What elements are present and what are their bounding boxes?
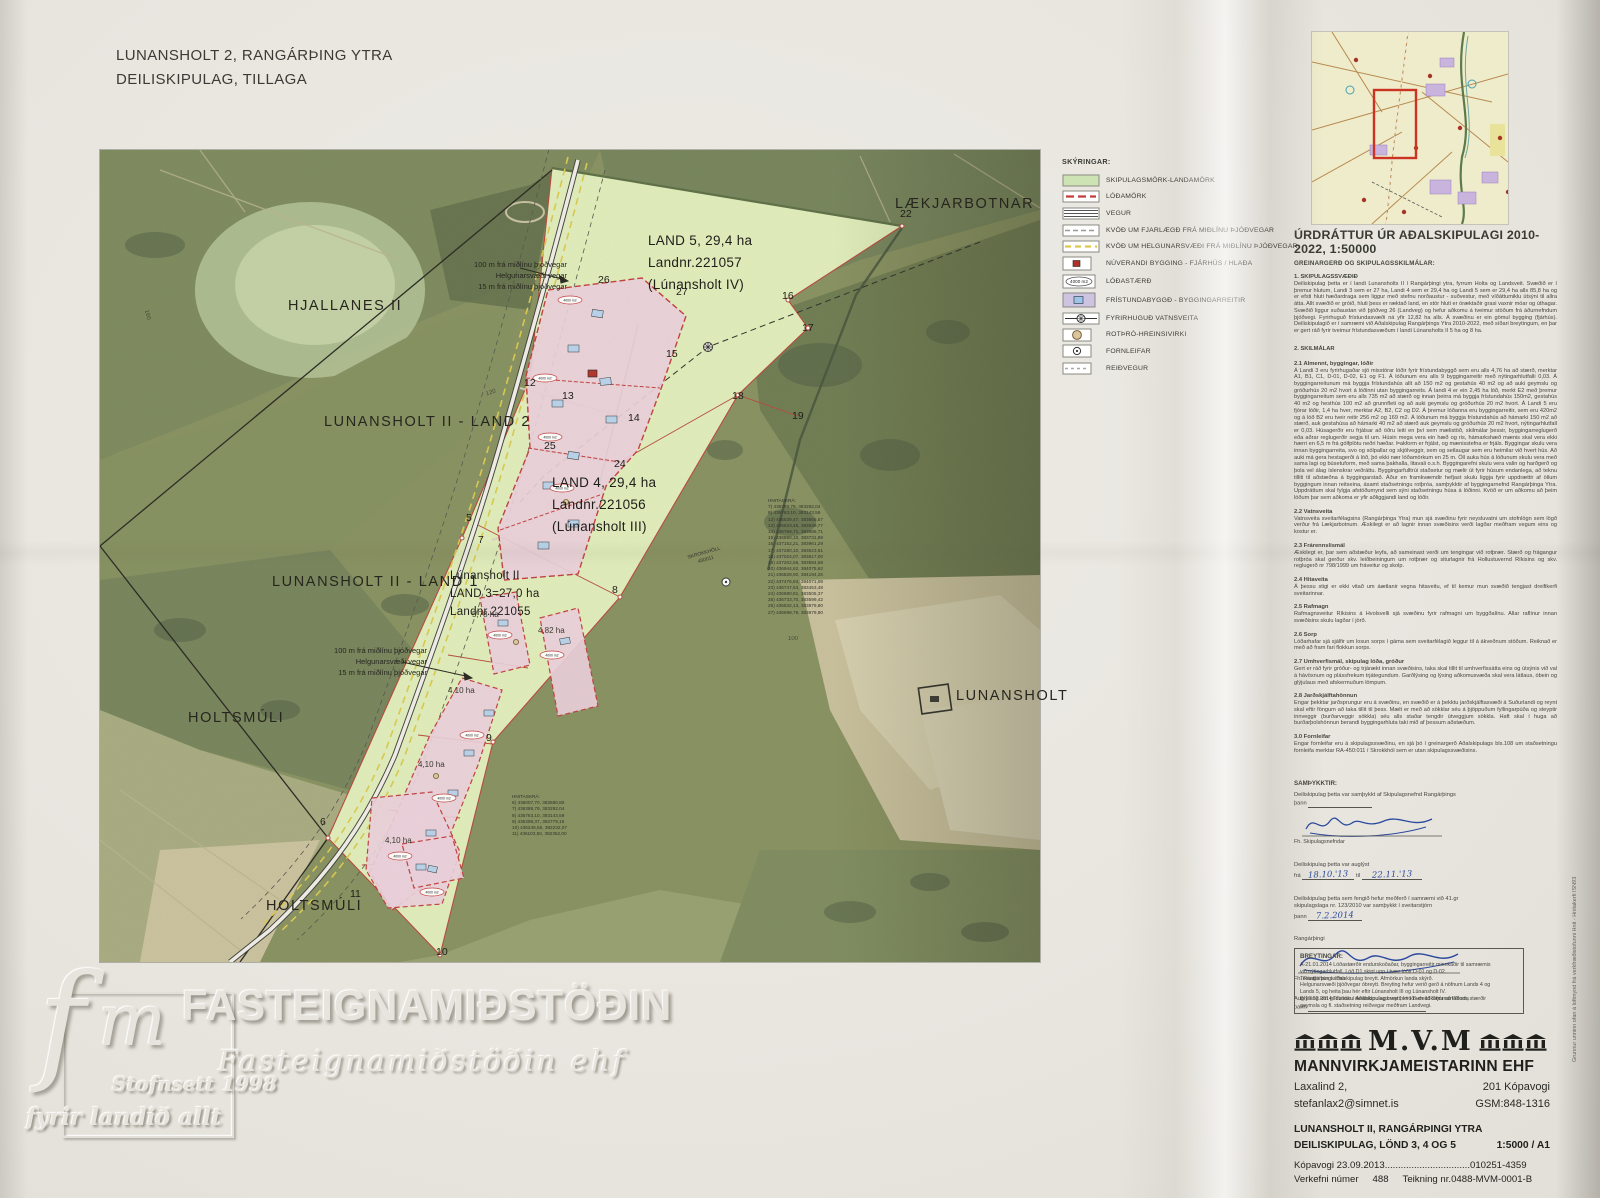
point-number: 18 <box>732 390 744 402</box>
reference-number: 010251-4359 <box>1470 1160 1527 1171</box>
section-body: Á þessu stigi er ekki vitað um áætlanir … <box>1294 584 1557 597</box>
legend-item: VEGUR <box>1062 205 1298 222</box>
council-line-a: Deiliskipulag þetta sem fengið hefur með… <box>1294 896 1458 902</box>
point-number: 12 <box>524 377 536 389</box>
point-number: 22 <box>900 208 912 220</box>
project-number: 488 <box>1373 1174 1389 1185</box>
road-note-mid: 100 m frá miðlínu þjóðvegar Helgunarsvæð… <box>312 646 427 679</box>
company-address: Laxalind 2, <box>1294 1079 1399 1096</box>
company-name: MANNVIRKJAMEISTARINN EHF <box>1294 1058 1550 1076</box>
plan-boundary-icon <box>1062 174 1106 187</box>
amendments-box: BREYTINGAR: A-21.01.2014 Lóðastærðir end… <box>1294 948 1524 1014</box>
left-edge-shadow <box>0 0 28 1198</box>
road-note-top: 100 m frá miðlínu þjóðvegar Helgunarsvæð… <box>452 260 567 293</box>
section-heading: 2.7 Umhverfismál, skipulag lóða, gróður <box>1294 659 1557 665</box>
watermark-logo-m: m <box>98 978 166 1062</box>
project-number-label: Verkefni númer <box>1294 1174 1359 1185</box>
place-label-holtsmuli-1: HOLTSMÚLI <box>188 710 284 726</box>
section-body: Engar fornleifar eru á skipulagssvæðinu,… <box>1294 741 1557 754</box>
section-heading: 1. SKIPULAGSSVÆÐIÐ <box>1294 274 1557 280</box>
point-number: 6 <box>320 816 326 828</box>
point-number: 17 <box>802 322 814 334</box>
project-number-line: Verkefni númer 488 Teikning nr.0488-MVM-… <box>1294 1174 1550 1185</box>
legend-item: NÚVERANDI BYGGING - FJÁRHÚS / HLAÐA <box>1062 255 1298 273</box>
advert-date-from: 18.10.'13 <box>1308 869 1349 882</box>
point-number: 24 <box>614 458 626 470</box>
svg-text:4000 m2: 4000 m2 <box>1070 280 1088 285</box>
watermark-company-script: Fasteignamiðstöðin ehf <box>218 1044 626 1078</box>
section-body: Æskilegt er, þar sem aðstæður leyfa, að … <box>1294 550 1557 570</box>
report-column: ÚRDRÁTTUR ÚR AÐALSKIPULAGI 2010-2022, 1:… <box>1294 228 1557 754</box>
legend-item: LÓÐAMÖRK <box>1062 189 1298 206</box>
point-number: 11 <box>350 888 361 900</box>
lot-size-icon: 4000 m2 <box>1062 274 1106 289</box>
riding-path-icon <box>1062 362 1106 375</box>
approvals-heading: SAMÞYKKTIR: <box>1294 780 1557 788</box>
inset-map-adalskipulag <box>1312 32 1508 224</box>
photo-grain <box>100 150 1040 962</box>
document-title-line2: DEILISKIPULAG, TILLAGA <box>116 68 393 92</box>
section-body: Vatnsveita sveitarfélagsins (Rangárþinga… <box>1294 516 1557 536</box>
leader-dots: ................................ <box>1385 1160 1470 1171</box>
section-body: Deiliskipulag þetta er í landi Lunanshol… <box>1294 281 1557 335</box>
approval-line1: Deiliskipulag þetta var samþykkt af Skip… <box>1294 792 1456 798</box>
company-email: stefanlax2@simnet.is <box>1294 1096 1399 1113</box>
hnitaskra-main: HNITASKRÁ: 7) 436389,79, 383292,04 8) 43… <box>768 498 823 616</box>
road-icon <box>1062 207 1106 220</box>
section-heading: 2.2 Vatnsveita <box>1294 509 1557 515</box>
signature-1 <box>1300 809 1450 841</box>
section-heading: 2.3 Frárennslismál <box>1294 543 1557 549</box>
lot-boundary-icon <box>1062 190 1106 203</box>
date-blank <box>1308 800 1372 808</box>
land4-label: LAND 4, 29,4 ha Landnr.221056 (Lúnanshol… <box>552 472 656 538</box>
section-heading: 2.6 Sorp <box>1294 632 1557 638</box>
amendments-body: A-21.01.2014 Lóðastærðir endurskoðaðar, … <box>1300 962 1518 1009</box>
section-body: Rafmagnsveitur Ríkisins á Hvolsvelli sjá… <box>1294 611 1557 624</box>
date-place: Kópavogi 23.09.2013 <box>1294 1160 1385 1171</box>
point-number: 13 <box>562 390 574 402</box>
scanned-plan-sheet: LUNANSHOLT 2, RANGÁRÞING YTRA DEILISKIPU… <box>0 0 1600 1198</box>
point-number: 10 <box>436 946 448 958</box>
section-heading: 2.1 Almennt, byggingar, lóðir <box>1294 361 1557 367</box>
section-body: Lóðarhafar sjá sjálfir um losun sorps í … <box>1294 639 1557 652</box>
area-label: 4,10 ha <box>418 760 445 769</box>
company-phone: GSM:848-1316 <box>1475 1096 1550 1113</box>
legend-item: ROTÞRÓ-HREINSIVIRKI <box>1062 327 1298 344</box>
point-number: 26 <box>598 274 610 286</box>
place-label-lunansholt: LUNANSHOLT <box>956 688 1068 704</box>
hnitaskra-south: HNITASKRÁ: 6) 436007,70, 382580,80 7) 43… <box>512 794 567 837</box>
amendments-heading: BREYTINGAR: <box>1300 953 1518 960</box>
project-title-line2: DEILISKIPULAG, LÖND 3, 4 OG 5 <box>1294 1138 1456 1153</box>
date-line: Kópavogi 23.09.2013.....................… <box>1294 1160 1550 1171</box>
legend-item: 4000 m2 LÓÐASTÆRÐ <box>1062 273 1298 291</box>
point-number: 9 <box>486 732 492 744</box>
watermark-company-name: FASTEIGNAMIÐSTÖÐIN <box>182 982 672 1031</box>
point-number: 16 <box>782 290 794 302</box>
legend-item: FYRIRHUGUÐ VATNSVEITA <box>1062 310 1298 327</box>
point-number: 25 <box>544 440 556 452</box>
drawing-number: Teikning nr.0488-MVM-0001-B <box>1403 1174 1533 1185</box>
legend-item: FRÍSTUNDABYGGÐ - BYGGINGARREITIR <box>1062 291 1298 310</box>
place-label-holtsmuli-2: HOLTSMÚLI <box>266 898 362 914</box>
advert-line: Deiliskipulag þetta var auglýst <box>1294 862 1369 868</box>
municipality-label: Rangárþingi <box>1294 936 1325 942</box>
council-line-b: skipulagslaga nr. 123/2010 var samþykkt … <box>1294 903 1432 909</box>
legend-item: KVÖÐ UM HELGUNARSVÆÐI FRÁ MIÐLÍNU ÞJÓÐVE… <box>1062 238 1298 255</box>
section-body: Engar þekktar jarðsprungur eru á svæðinu… <box>1294 700 1557 727</box>
inset-yellow-zone <box>1490 124 1505 156</box>
legend-item: FORNLEIFAR <box>1062 343 1298 360</box>
watermark-logo-box <box>62 992 234 1138</box>
legend-heading: SKÝRINGAR: <box>1062 157 1298 166</box>
summerhouse-area-icon <box>1062 292 1106 308</box>
place-label-land1: LUNANSHOLT II - LAND 1 <box>272 574 479 590</box>
project-title-line1: LUNANSHOLT II, RANGÁRÞINGI YTRA <box>1294 1122 1550 1137</box>
company-logo-text: M.V.M <box>1368 1026 1473 1057</box>
report-title: ÚRDRÁTTUR ÚR AÐALSKIPULAGI 2010-2022, 1:… <box>1294 228 1557 256</box>
area-label: 4,82 ha <box>538 626 565 635</box>
council-date: 7.2.2014 <box>1316 910 1354 923</box>
legend-item: KVÖÐ UM FJARLÆGÐ FRÁ MIÐLÍNU ÞJÓÐVEGAR <box>1062 222 1298 239</box>
place-label-hjallanes: HJALLANES II <box>288 298 402 314</box>
drawing-scale: 1:5000 / A1 <box>1497 1138 1550 1153</box>
section-body: Gert er ráð fyrir gróður- og trjárækt in… <box>1294 666 1557 686</box>
point-number: 15 <box>666 348 678 360</box>
section-heading: 2.4 Hitaveita <box>1294 577 1557 583</box>
point-number: 7 <box>478 534 484 546</box>
legend: SKÝRINGAR: SKIPULAGSMÖRK-LANDAMÖRK LÓÐAM… <box>1062 157 1298 376</box>
legend-item: SKIPULAGSMÖRK-LANDAMÖRK <box>1062 172 1298 189</box>
watermark-founded: Stofnsett 1998 <box>112 1072 277 1096</box>
section-heading: 3.0 Fornleifar <box>1294 734 1557 740</box>
site-plan-map: 4000 m2 4000 m2 4000 m2 4000 m2 4000 m2 … <box>100 150 1040 962</box>
road-protection-zone-icon <box>1062 240 1106 253</box>
archaeology-icon <box>1062 344 1106 358</box>
point-number: 27 <box>676 286 688 298</box>
point-number: 14 <box>628 412 640 424</box>
contour-label: 100 <box>788 636 798 642</box>
company-contact: Laxalind 2, stefanlax2@simnet.is 201 Kóp… <box>1294 1079 1550 1113</box>
point-number: 19 <box>792 410 804 422</box>
title-block: M.V.M MANNVIRKJAMEISTARINN EHF Laxalind … <box>1294 1026 1550 1185</box>
watermark-slogan: fyrir landið allt <box>26 1104 222 1131</box>
section-heading: 2.8 Jarðskjálftahönnun <box>1294 693 1557 699</box>
area-label: 4,10 ha <box>385 836 412 845</box>
land5-label: LAND 5, 29,4 ha Landnr.221057 (Lúnanshol… <box>648 230 752 296</box>
right-edge-shadow <box>1556 0 1600 1198</box>
place-label-laekjarbotnar: LÆKJARBOTNAR <box>895 196 1034 212</box>
section-heading: 2. SKILMÁLAR <box>1294 346 1557 352</box>
area-label: 5,78 ha <box>472 610 499 619</box>
watermark-logo-f: f <box>38 948 85 1097</box>
area-label: 4,10 ha <box>448 686 475 695</box>
point-number: 8 <box>612 584 618 596</box>
section-heading: 2.5 Rafmagn <box>1294 604 1557 610</box>
temple-icons-right <box>1479 1033 1547 1051</box>
waterline-icon <box>1062 312 1106 325</box>
advert-date-to: 22.11.'13 <box>1372 869 1413 882</box>
aerial-photo-map: 4000 m2 4000 m2 4000 m2 4000 m2 4000 m2 … <box>100 150 1040 962</box>
legend-item: REIÐVEGUR <box>1062 360 1298 377</box>
temple-icons-left <box>1294 1033 1362 1051</box>
section-body: Á Landi 3 eru fyrirhugaðar sjö misstórar… <box>1294 368 1557 502</box>
existing-building-icon <box>1062 256 1106 271</box>
point-number: 5 <box>466 512 472 524</box>
margin-credit-note: Grunnur unninn ofan á loftmynd frá verkf… <box>1572 832 1578 1062</box>
inset-map-graphic <box>1312 32 1508 224</box>
company-logo-row: M.V.M <box>1294 1026 1550 1057</box>
company-city: 201 Kópavogi <box>1475 1079 1550 1096</box>
signature-1-caption: Fh. Skipulagsnefndar <box>1294 839 1557 846</box>
road-distance-restriction-icon <box>1062 224 1106 237</box>
report-subtitle: GREINARGERÐ OG SKIPULAGSSKILMÁLAR: <box>1294 260 1557 267</box>
place-label-land2: LUNANSHOLT II - LAND 2 <box>324 414 531 430</box>
document-title: LUNANSHOLT 2, RANGÁRÞING YTRA DEILISKIPU… <box>116 44 393 92</box>
septic-tank-icon <box>1062 328 1106 342</box>
document-title-line1: LUNANSHOLT 2, RANGÁRÞING YTRA <box>116 44 393 68</box>
